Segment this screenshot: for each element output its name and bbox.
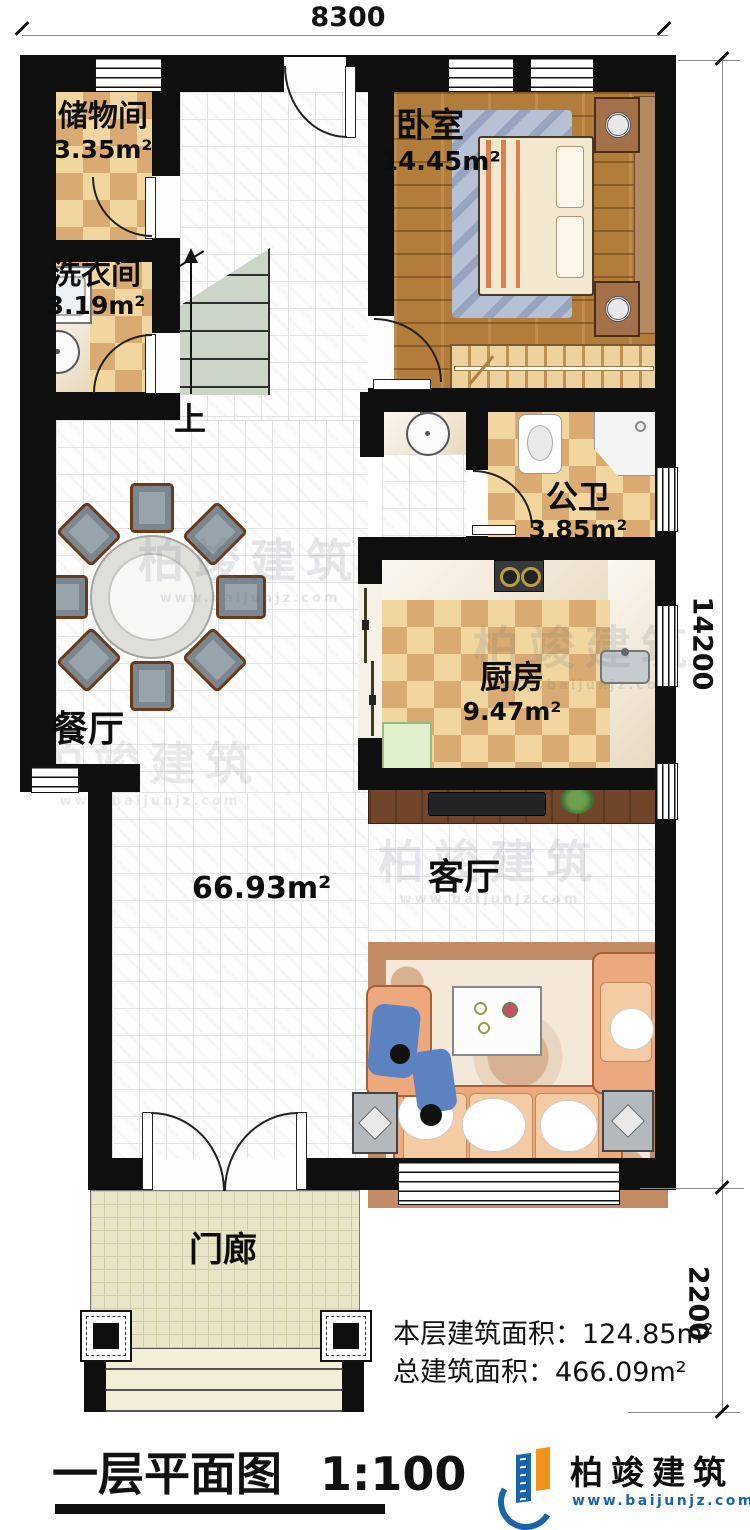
- bed-pillow: [556, 146, 584, 208]
- dining-chair: [130, 483, 174, 533]
- page-title: 一层平面图: [52, 1447, 282, 1501]
- squat-toilet: [518, 414, 562, 474]
- kitchen-cabinet: [382, 722, 432, 772]
- drawing-scale: 1:100: [320, 1447, 466, 1501]
- storage-label: 储物间: [48, 100, 158, 133]
- sofa-throw: [540, 1100, 598, 1152]
- window-living-right: [655, 763, 678, 820]
- burner: [521, 567, 541, 587]
- bathroom-area: 3.85m²: [518, 516, 638, 544]
- opening-kitchen-slide: [358, 584, 382, 738]
- wardrobe: [450, 344, 660, 394]
- porch-column: [80, 1310, 132, 1362]
- floor-area-value: 124.85m²: [582, 1319, 714, 1350]
- dimension-tick: [657, 21, 672, 36]
- drain: [425, 431, 430, 436]
- wall-bedroom-bottom: [368, 388, 676, 412]
- total-area-row: 总建筑面积：466.09m²: [393, 1354, 714, 1392]
- window-bedroom-2: [530, 57, 594, 92]
- wall-left: [20, 55, 56, 792]
- person-sitting-head: [390, 1044, 410, 1064]
- bathroom-label: 公卫: [518, 480, 638, 515]
- opening-laundry-door: [152, 333, 180, 393]
- dining-chair: [216, 575, 266, 619]
- dimension-tick: [15, 21, 30, 36]
- tv: [428, 792, 546, 816]
- side-table: [352, 1092, 398, 1154]
- lamp: [605, 296, 631, 322]
- window-living-front: [398, 1161, 620, 1205]
- cup: [478, 1022, 490, 1034]
- logo-company-name: 柏竣建筑: [570, 1455, 734, 1491]
- area-summary: 本层建筑面积：124.85m² 总建筑面积：466.09m²: [393, 1316, 714, 1392]
- faucet: [621, 648, 629, 656]
- side-table: [602, 1090, 654, 1152]
- wall-vanity-stub: [360, 392, 384, 457]
- wall-left-lower: [88, 792, 112, 1190]
- sliding-door-handle: [362, 620, 369, 630]
- window-kitchen: [655, 605, 678, 687]
- porch-label: 门廊: [168, 1232, 278, 1269]
- stairs-direction-line: [190, 260, 192, 394]
- vanity-sink: [406, 412, 450, 456]
- porch-pier: [84, 1358, 106, 1412]
- logo-building-blue-icon: [516, 1453, 531, 1503]
- dining-table-top: [108, 553, 196, 641]
- extension-line: [678, 60, 740, 61]
- bedroom-label: 卧室: [396, 108, 464, 145]
- shower-drain: [635, 421, 646, 432]
- logo-building-orange-icon: [536, 1447, 550, 1491]
- dining-chair: [130, 661, 174, 711]
- sliding-door-handle: [369, 695, 376, 705]
- column-core: [93, 1323, 119, 1349]
- title-block: 一层平面图 1:100: [52, 1438, 466, 1504]
- nightstand: [594, 97, 640, 153]
- dining-label: 餐厅: [52, 710, 124, 750]
- lamp: [605, 112, 631, 138]
- extension-line: [640, 1188, 744, 1189]
- window-bathroom: [655, 467, 678, 532]
- dimension-top-value: 8300: [300, 2, 396, 33]
- dimension-right-main-value: 14200: [687, 574, 718, 714]
- flower-vase: [502, 1002, 518, 1018]
- kitchen-sink: [600, 650, 650, 684]
- nightstand: [594, 281, 640, 337]
- bedroom-area: 14.45m²: [380, 148, 501, 177]
- company-logo: [498, 1448, 562, 1522]
- storage-area: 3.35m²: [48, 136, 158, 164]
- total-area-value: 466.09m²: [555, 1357, 687, 1388]
- window-bedroom-1: [448, 57, 514, 92]
- plant: [560, 786, 594, 814]
- laundry-label: 洗衣间: [40, 258, 152, 291]
- floor-area-row: 本层建筑面积：124.85m²: [393, 1316, 714, 1354]
- floor-plan: 柏竣建筑 www.baijunjz.com 柏竣建筑 www.baijunjz.…: [0, 0, 750, 1530]
- living-label: 客厅: [428, 858, 500, 898]
- porch-pier: [342, 1358, 364, 1412]
- window-dining-left: [31, 766, 79, 793]
- wall-kitchen-bottom: [358, 768, 676, 790]
- window-storage: [95, 57, 162, 92]
- porch-column: [320, 1310, 372, 1362]
- stairs-up-label: 上: [174, 402, 206, 437]
- opening-storage-door: [152, 176, 180, 238]
- column-core: [333, 1323, 359, 1349]
- squat-pan: [527, 425, 553, 461]
- stove: [494, 560, 544, 592]
- cup: [474, 1002, 487, 1015]
- dimension-line-right: [722, 60, 723, 1412]
- side-table-inlay: [358, 1106, 392, 1140]
- bath-lobby-floor: [382, 454, 466, 537]
- person-lying-head: [420, 1104, 442, 1126]
- hall-area-label: 66.93m²: [192, 872, 331, 905]
- wall-laundry-bottom: [20, 392, 180, 420]
- laundry-area: 3.19m²: [40, 292, 152, 320]
- burner: [500, 567, 520, 587]
- floor-area-label: 本层建筑面积：: [393, 1319, 582, 1350]
- logo-website: www.baijunjz.com: [572, 1494, 750, 1509]
- sofa-throw: [462, 1098, 526, 1152]
- dimension-line-top: [22, 35, 668, 36]
- kitchen-label: 厨房: [452, 660, 572, 695]
- armchair-throw: [610, 1008, 654, 1050]
- kitchen-area: 9.47m²: [452, 698, 572, 726]
- coffee-table: [452, 986, 542, 1056]
- total-area-label: 总建筑面积：: [393, 1357, 555, 1388]
- bed-pillow: [556, 216, 584, 278]
- side-table-inlay: [611, 1104, 645, 1138]
- title-underline: [55, 1504, 385, 1514]
- porch-steps: [104, 1348, 346, 1412]
- hall-floor-lower: [112, 792, 368, 1158]
